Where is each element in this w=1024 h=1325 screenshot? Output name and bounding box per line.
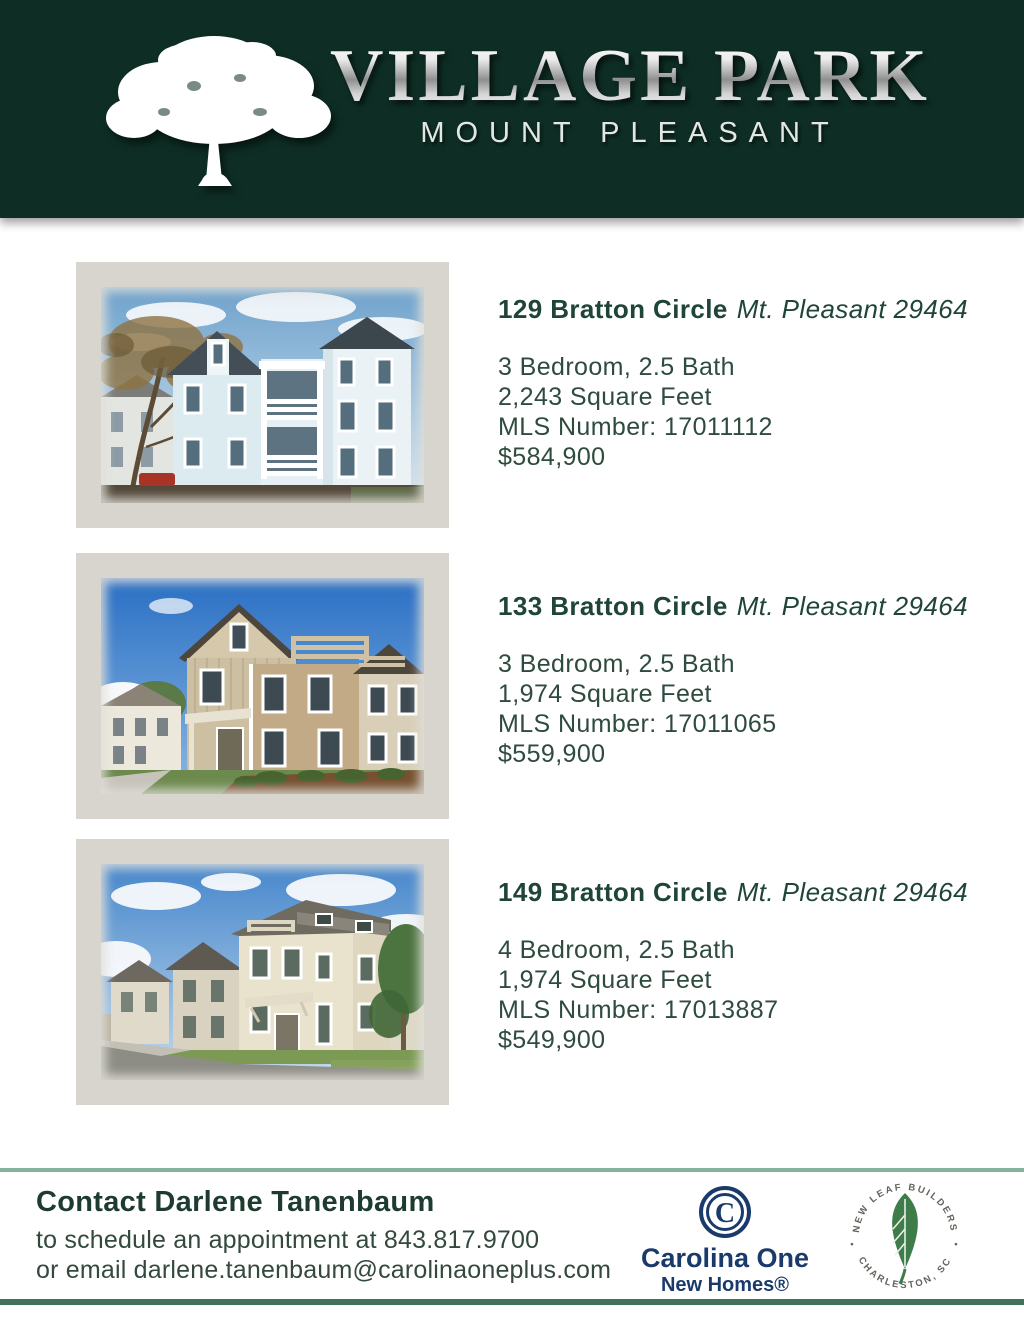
listing-location: Mt. Pleasant 29464 (737, 877, 968, 907)
new-leaf-builders-logo: NEW LEAF BUILDERS CHARLESTON, SC • • (846, 1177, 964, 1295)
listing-sqft: 2,243 Square Feet (498, 382, 968, 412)
carolina-one-c-icon: C (698, 1185, 752, 1239)
listing-heading: 133 Bratton CircleMt. Pleasant 29464 (498, 591, 968, 622)
listing-price: $584,900 (498, 442, 968, 472)
carolina-one-logo: C Carolina One New Homes® (640, 1185, 810, 1297)
listing-location: Mt. Pleasant 29464 (737, 294, 968, 324)
listing-heading: 149 Bratton CircleMt. Pleasant 29464 (498, 877, 968, 908)
listing-photo-149 (101, 864, 424, 1080)
listing-photo-frame (76, 262, 449, 528)
listing-price: $549,900 (498, 1025, 968, 1055)
contact-phone-line: to schedule an appointment at 843.817.97… (36, 1225, 611, 1255)
listing-photo-frame (76, 839, 449, 1105)
listing-mls: MLS Number: 17011065 (498, 709, 968, 739)
brand-subtitle: MOUNT PLEASANT (278, 117, 982, 150)
brand-title-block: VILLAGE PARK MOUNT PLEASANT (278, 38, 982, 150)
flyer-page: VILLAGE PARK MOUNT PLEASANT (0, 0, 1024, 1325)
listing-info: 149 Bratton CircleMt. Pleasant 29464 4 B… (498, 877, 968, 1055)
footer-bottom-rule (0, 1299, 1024, 1305)
header-banner: VILLAGE PARK MOUNT PLEASANT (0, 0, 1024, 218)
contact-heading: Contact Darlene Tanenbaum (36, 1186, 611, 1219)
listing-price: $559,900 (498, 739, 968, 769)
listing-photo-frame (76, 553, 449, 819)
listing-card-133: 133 Bratton CircleMt. Pleasant 29464 3 B… (76, 553, 956, 819)
listing-photo-133 (101, 578, 424, 794)
listing-bedbath: 3 Bedroom, 2.5 Bath (498, 352, 968, 382)
listing-card-129: 129 Bratton CircleMt. Pleasant 29464 3 B… (76, 262, 956, 528)
listing-info: 133 Bratton CircleMt. Pleasant 29464 3 B… (498, 591, 968, 769)
contact-block: Contact Darlene Tanenbaum to schedule an… (36, 1186, 611, 1285)
listing-mls: MLS Number: 17013887 (498, 995, 968, 1025)
listing-bedbath: 3 Bedroom, 2.5 Bath (498, 649, 968, 679)
brand-title: VILLAGE PARK (278, 38, 982, 114)
listing-photo-129 (101, 287, 424, 503)
listing-address: 129 Bratton Circle (498, 294, 728, 324)
carolina-one-c-letter: C (715, 1198, 735, 1229)
listing-address: 133 Bratton Circle (498, 591, 728, 621)
listing-mls: MLS Number: 17011112 (498, 412, 968, 442)
contact-email-line: or email darlene.tanenbaum@carolinaonepl… (36, 1255, 611, 1285)
listing-bedbath: 4 Bedroom, 2.5 Bath (498, 935, 968, 965)
carolina-one-subname: New Homes® (640, 1274, 810, 1297)
new-leaf-separator-right: • (954, 1239, 960, 1250)
listing-sqft: 1,974 Square Feet (498, 965, 968, 995)
listing-info: 129 Bratton CircleMt. Pleasant 29464 3 B… (498, 294, 968, 472)
carolina-one-name: Carolina One (640, 1243, 810, 1274)
listing-sqft: 1,974 Square Feet (498, 679, 968, 709)
footer-top-rule (0, 1168, 1024, 1172)
listing-card-149: 149 Bratton CircleMt. Pleasant 29464 4 B… (76, 839, 956, 1105)
listing-heading: 129 Bratton CircleMt. Pleasant 29464 (498, 294, 968, 325)
new-leaf-separator-left: • (850, 1239, 856, 1250)
listing-location: Mt. Pleasant 29464 (737, 591, 968, 621)
listing-address: 149 Bratton Circle (498, 877, 728, 907)
